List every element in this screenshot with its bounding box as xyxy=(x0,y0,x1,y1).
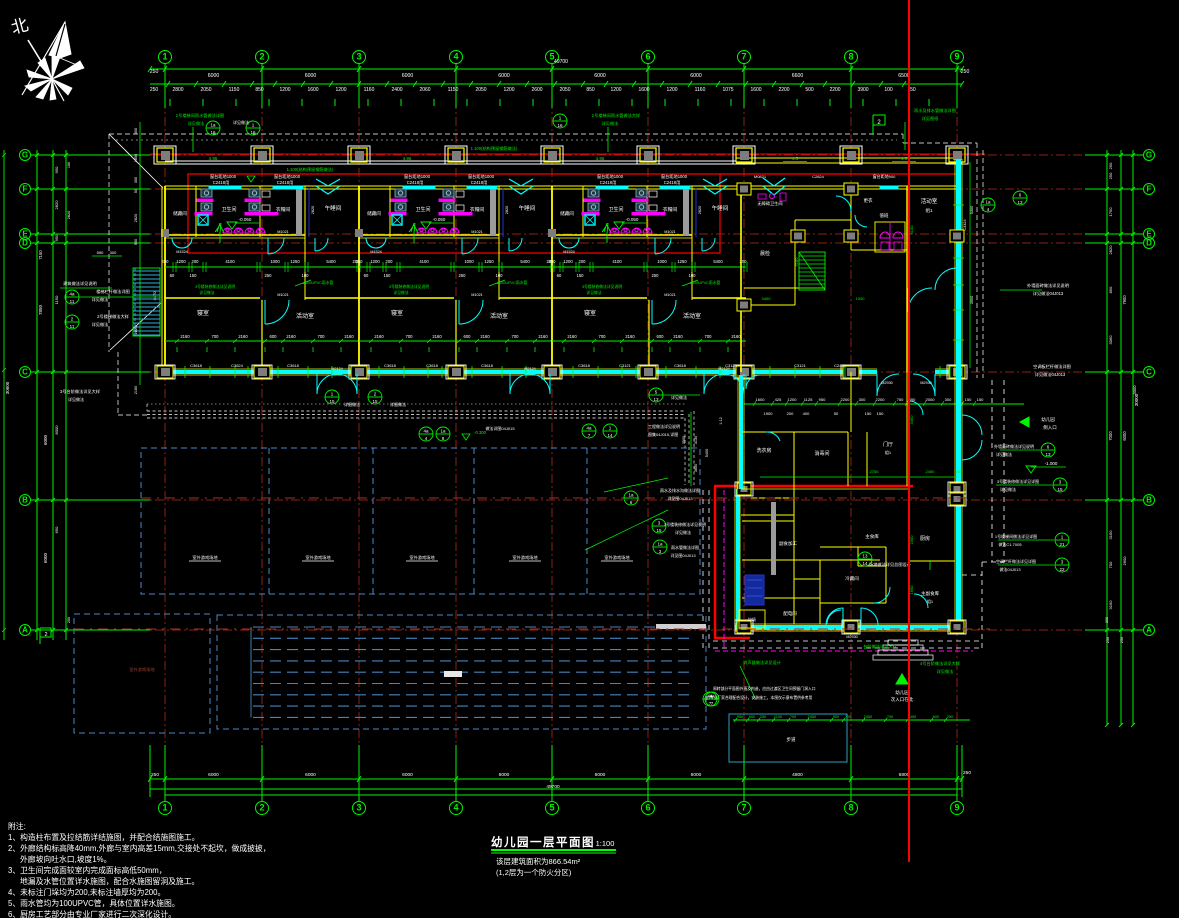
svg-text:C2824: C2824 xyxy=(812,174,825,179)
svg-text:7000: 7000 xyxy=(1108,431,1113,441)
svg-text:250: 250 xyxy=(652,273,660,278)
svg-text:3000: 3000 xyxy=(1132,385,1137,395)
svg-text:侧入口: 侧入口 xyxy=(1043,424,1057,431)
svg-text:详见做法: 详见做法 xyxy=(68,396,84,402)
svg-text:700: 700 xyxy=(212,334,220,339)
svg-text:窗台距地1000: 窗台距地1000 xyxy=(274,173,301,180)
svg-text:5300: 5300 xyxy=(970,206,974,214)
svg-text:2820: 2820 xyxy=(505,206,509,214)
svg-text:1a: 1a xyxy=(985,200,991,205)
svg-text:详细做法: 详细做法 xyxy=(390,401,406,407)
svg-text:6000: 6000 xyxy=(402,772,413,778)
svg-text:15: 15 xyxy=(1057,487,1063,492)
svg-text:无障碍卫生间: 无障碍卫生间 xyxy=(757,200,782,207)
svg-text:5400: 5400 xyxy=(713,259,723,264)
svg-text:值班: 值班 xyxy=(880,212,889,219)
svg-text:2820: 2820 xyxy=(54,200,59,210)
svg-text:周转部分平面图外墙及构造，应由过渡区卫生间预留门洞入口: 周转部分平面图外墙及构造，应由过渡区卫生间预留门洞入口 xyxy=(713,686,816,691)
svg-text:外廊坡向吐水口,坡度1%。: 外廊坡向吐水口,坡度1%。 xyxy=(20,854,111,864)
svg-text:8: 8 xyxy=(848,803,853,813)
svg-text:午睡间: 午睡间 xyxy=(712,204,729,212)
svg-text:4: 4 xyxy=(453,803,458,813)
svg-text:4100: 4100 xyxy=(612,259,622,264)
svg-text:700: 700 xyxy=(599,334,607,339)
svg-text:外墙面砖做法详见说明: 外墙面砖做法详见说明 xyxy=(994,443,1034,449)
svg-text:1200: 1200 xyxy=(563,259,573,264)
svg-text:250: 250 xyxy=(150,69,159,75)
svg-text:350: 350 xyxy=(162,259,170,264)
svg-text:1.100(结构预留钢筋做法): 1.100(结构预留钢筋做法) xyxy=(471,145,518,152)
svg-text:步道: 步道 xyxy=(787,736,796,743)
svg-text:4800: 4800 xyxy=(792,772,803,778)
svg-text:700: 700 xyxy=(318,334,326,339)
svg-text:1200: 1200 xyxy=(370,259,380,264)
svg-text:储藏间: 储藏间 xyxy=(367,210,381,217)
svg-text:该层建筑面积为866.54m²: 该层建筑面积为866.54m² xyxy=(496,856,581,866)
svg-text:由专业厂家合理配合设计，安装施工，本图仅示意布置供参考用: 由专业厂家合理配合设计，安装施工，本图仅示意布置供参考用 xyxy=(706,695,813,700)
svg-text:1250: 1250 xyxy=(677,259,687,264)
svg-text:3号楼装修做法详见说明: 3号楼装修做法详见说明 xyxy=(195,284,235,289)
svg-text:C3618: C3618 xyxy=(578,363,591,368)
svg-text:350: 350 xyxy=(356,259,364,264)
svg-text:6000: 6000 xyxy=(43,434,48,445)
svg-text:2160: 2160 xyxy=(134,386,138,394)
svg-text:300: 300 xyxy=(110,250,117,255)
svg-text:副食加工: 副食加工 xyxy=(779,540,797,547)
svg-text:60: 60 xyxy=(170,273,175,278)
svg-text:详见做法: 详见做法 xyxy=(602,120,619,127)
svg-text:详见做法: 详见做法 xyxy=(675,529,691,535)
svg-text:1250: 1250 xyxy=(484,259,494,264)
svg-text:1200: 1200 xyxy=(335,87,346,93)
svg-text:ø100UPVC雨水管: ø100UPVC雨水管 xyxy=(690,280,721,285)
svg-text:250: 250 xyxy=(151,772,159,778)
svg-text:30600: 30600 xyxy=(5,381,10,394)
svg-text:200: 200 xyxy=(579,259,587,264)
svg-text:M1021: M1021 xyxy=(471,230,483,234)
svg-text:700: 700 xyxy=(790,715,796,719)
svg-text:窗台距地1000: 窗台距地1000 xyxy=(661,173,688,180)
svg-text:300: 300 xyxy=(134,128,138,134)
svg-text:M1021: M1021 xyxy=(664,293,676,297)
svg-text:寝室: 寝室 xyxy=(391,309,403,317)
svg-text:M1021: M1021 xyxy=(277,293,289,297)
svg-text:250: 250 xyxy=(1106,637,1110,643)
svg-text:100: 100 xyxy=(884,87,893,93)
svg-text:150: 150 xyxy=(965,397,972,402)
svg-text:1200: 1200 xyxy=(176,259,186,264)
svg-text:15: 15 xyxy=(329,399,335,404)
svg-text:F: F xyxy=(23,185,28,194)
svg-text:50: 50 xyxy=(834,411,839,416)
svg-text:2800: 2800 xyxy=(172,87,183,93)
svg-text:250: 250 xyxy=(150,87,159,93)
svg-text:3900: 3900 xyxy=(970,296,974,304)
svg-text:250: 250 xyxy=(67,617,71,623)
svg-text:主食库: 主食库 xyxy=(865,533,879,540)
svg-text:250: 250 xyxy=(760,715,766,719)
svg-text:2160: 2160 xyxy=(673,334,683,339)
svg-text:4100: 4100 xyxy=(225,259,235,264)
svg-text:-0.050: -0.050 xyxy=(626,217,639,222)
svg-text:2750: 2750 xyxy=(870,469,880,474)
svg-text:6000: 6000 xyxy=(498,73,510,79)
svg-text:工程做法详见说明: 工程做法详见说明 xyxy=(648,423,680,429)
svg-text:2200: 2200 xyxy=(876,397,886,402)
svg-text:5400: 5400 xyxy=(520,259,530,264)
svg-text:1号楼梯间雨水管做法详图: 1号楼梯间雨水管做法详图 xyxy=(176,112,224,119)
svg-text:7: 7 xyxy=(741,52,746,62)
svg-text:午睡间: 午睡间 xyxy=(325,204,342,212)
svg-text:室外游戏场地: 室外游戏场地 xyxy=(129,666,155,673)
svg-text:详见图04J013: 详见图04J013 xyxy=(667,495,693,501)
svg-text:M1524: M1524 xyxy=(563,250,575,254)
svg-text:(1,2层为一个防火分区): (1,2层为一个防火分区) xyxy=(496,867,572,877)
svg-text:1200: 1200 xyxy=(503,87,514,93)
svg-text:150: 150 xyxy=(865,411,872,416)
svg-text:M2930: M2930 xyxy=(846,635,858,639)
svg-text:详见做法: 详见做法 xyxy=(233,119,249,125)
svg-text:3号台阶做法详见大样: 3号台阶做法详见大样 xyxy=(60,388,100,395)
svg-text:1160: 1160 xyxy=(364,87,375,93)
svg-text:6000: 6000 xyxy=(1122,431,1127,441)
svg-text:储藏间: 储藏间 xyxy=(560,210,574,217)
svg-text:3600: 3600 xyxy=(694,464,698,472)
svg-text:4a: 4a xyxy=(69,292,75,297)
svg-text:1075: 1075 xyxy=(722,87,733,93)
svg-text:衣帽间: 衣帽间 xyxy=(276,206,291,213)
svg-text:850: 850 xyxy=(1108,286,1113,293)
svg-text:室外游戏场地: 室外游戏场地 xyxy=(305,554,331,561)
svg-text:4470: 4470 xyxy=(152,291,157,301)
svg-text:C3618: C3618 xyxy=(190,363,203,368)
svg-text:窗台距地1000: 窗台距地1000 xyxy=(210,173,237,180)
svg-text:做法详图04J015: 做法详图04J015 xyxy=(485,425,515,431)
svg-text:1a: 1a xyxy=(628,493,634,498)
svg-text:2820: 2820 xyxy=(134,326,138,334)
svg-text:3、卫生间完成面较室内完成面标高低50mm，: 3、卫生间完成面较室内完成面标高低50mm， xyxy=(8,865,167,875)
svg-text:2050: 2050 xyxy=(559,87,570,93)
svg-text:窗台距地1000: 窗台距地1000 xyxy=(404,173,431,180)
svg-text:700: 700 xyxy=(1108,561,1113,568)
svg-text:1850: 1850 xyxy=(134,154,138,162)
svg-text:组1: 组1 xyxy=(927,598,934,604)
svg-text:4.5: 4.5 xyxy=(901,156,908,161)
svg-text:2号楼梯做法大样: 2号楼梯做法大样 xyxy=(97,313,129,320)
svg-text:150: 150 xyxy=(190,273,198,278)
svg-text:2600: 2600 xyxy=(1122,556,1127,566)
svg-text:4.5: 4.5 xyxy=(792,156,799,161)
svg-text:500: 500 xyxy=(833,715,839,719)
svg-text:3400: 3400 xyxy=(762,296,772,301)
svg-text:600: 600 xyxy=(464,334,472,339)
svg-text:活动室: 活动室 xyxy=(296,312,314,320)
svg-text:60: 60 xyxy=(364,273,369,278)
svg-text:组1: 组1 xyxy=(885,449,892,455)
svg-text:M1021: M1021 xyxy=(471,293,483,297)
svg-text:ø100UPVC雨水管: ø100UPVC雨水管 xyxy=(303,280,334,285)
svg-text:8: 8 xyxy=(848,52,853,62)
svg-text:950: 950 xyxy=(819,397,826,402)
svg-text:场地做法详见总图设计: 场地做法详见总图设计 xyxy=(869,561,911,568)
svg-text:雨水及排水沟做法详图: 雨水及排水沟做法详图 xyxy=(660,487,700,493)
svg-text:2200: 2200 xyxy=(841,397,851,402)
svg-text:做法C1.7005: 做法C1.7005 xyxy=(998,541,1022,547)
svg-text:6600: 6600 xyxy=(792,73,804,79)
svg-text:消毒间: 消毒间 xyxy=(814,450,829,457)
svg-text:650: 650 xyxy=(54,526,59,533)
svg-text:5400: 5400 xyxy=(705,449,709,457)
svg-text:C: C xyxy=(1146,368,1152,377)
svg-text:主副食库: 主副食库 xyxy=(921,590,939,597)
svg-text:午睡间: 午睡间 xyxy=(519,204,536,212)
svg-text:5400: 5400 xyxy=(326,259,336,264)
svg-text:250: 250 xyxy=(265,273,273,278)
svg-text:200: 200 xyxy=(386,259,394,264)
svg-text:100: 100 xyxy=(689,273,697,278)
svg-text:6、厨房工艺部分由专业厂家进行二次深化设计。: 6、厨房工艺部分由专业厂家进行二次深化设计。 xyxy=(8,909,176,918)
svg-text:卫生间: 卫生间 xyxy=(221,206,236,213)
svg-text:活动室: 活动室 xyxy=(490,312,508,320)
svg-text:6: 6 xyxy=(645,52,650,62)
svg-text:300: 300 xyxy=(1105,617,1109,623)
svg-text:2160: 2160 xyxy=(567,334,577,339)
svg-text:厨房: 厨房 xyxy=(920,535,930,542)
svg-text:6000: 6000 xyxy=(402,73,414,79)
svg-text:室外游戏场地: 室外游戏场地 xyxy=(192,554,218,561)
svg-text:4a: 4a xyxy=(423,429,429,434)
svg-text:3900: 3900 xyxy=(857,87,868,93)
svg-text:活动室: 活动室 xyxy=(683,312,701,320)
svg-text:C3618: C3618 xyxy=(481,363,494,368)
svg-text:雨水管做法详图: 雨水管做法详图 xyxy=(671,544,699,550)
svg-text:3060: 3060 xyxy=(1108,335,1113,345)
svg-text:M1524: M1524 xyxy=(370,250,382,254)
svg-text:窗台距地1000: 窗台距地1000 xyxy=(597,173,624,180)
svg-text:1200: 1200 xyxy=(666,87,677,93)
svg-text:6000: 6000 xyxy=(691,772,702,778)
svg-text:7: 7 xyxy=(741,803,746,813)
svg-text:详见做法: 详见做法 xyxy=(937,668,954,675)
svg-text:425: 425 xyxy=(775,397,782,402)
svg-text:B: B xyxy=(22,496,28,505)
svg-text:卫生间: 卫生间 xyxy=(608,206,623,213)
svg-text:1号楼梯间做法详见详图: 1号楼梯间做法详见详图 xyxy=(995,533,1037,539)
svg-text:门厅: 门厅 xyxy=(883,441,893,448)
svg-text:100: 100 xyxy=(302,273,310,278)
svg-text:3号楼装修做法详见详图: 3号楼装修做法详见详图 xyxy=(997,478,1039,484)
svg-text:2200: 2200 xyxy=(778,87,789,93)
svg-text:1200: 1200 xyxy=(610,87,621,93)
svg-text:幼儿园一层平面图: 幼儿园一层平面图 xyxy=(491,835,595,849)
svg-text:1600: 1600 xyxy=(756,397,766,402)
svg-text:150: 150 xyxy=(67,162,71,168)
svg-text:D: D xyxy=(1146,239,1152,248)
svg-text:2160: 2160 xyxy=(731,334,741,339)
svg-text:详见做法: 详见做法 xyxy=(1000,486,1016,492)
svg-text:2600: 2600 xyxy=(531,87,542,93)
svg-text:6000: 6000 xyxy=(305,73,317,79)
svg-text:C3121: C3121 xyxy=(619,363,632,368)
svg-text:2: 2 xyxy=(259,52,264,62)
svg-text:5: 5 xyxy=(549,803,554,813)
svg-text:M2930: M2930 xyxy=(920,381,932,385)
svg-text:2820: 2820 xyxy=(311,206,315,214)
svg-text:空调板栏杆做法详图: 空调板栏杆做法详图 xyxy=(1033,363,1071,370)
svg-text:1250: 1250 xyxy=(290,259,300,264)
svg-text:C: C xyxy=(22,368,28,377)
svg-text:1150: 1150 xyxy=(448,87,459,93)
svg-text:详见做法: 详见做法 xyxy=(393,290,408,295)
svg-text:-1.000: -1.000 xyxy=(1045,461,1058,466)
svg-text:附注:: 附注: xyxy=(8,821,26,831)
svg-text:11: 11 xyxy=(70,324,75,329)
svg-text:49700: 49700 xyxy=(554,59,568,65)
svg-text:950: 950 xyxy=(134,239,138,245)
svg-text:1000: 1000 xyxy=(270,259,280,264)
svg-text:22: 22 xyxy=(1059,567,1065,572)
svg-text:详见图04J013: 详见图04J013 xyxy=(670,552,696,558)
svg-text:1600: 1600 xyxy=(307,87,318,93)
svg-text:300: 300 xyxy=(945,397,952,402)
svg-text:建筑做法详见说明: 建筑做法详见说明 xyxy=(63,280,97,287)
svg-text:M1021: M1021 xyxy=(664,230,676,234)
svg-text:49700: 49700 xyxy=(546,784,560,790)
svg-text:空调栏杆做法详见详图: 空调栏杆做法详见详图 xyxy=(996,558,1036,564)
svg-text:950: 950 xyxy=(737,715,743,719)
svg-text:2050: 2050 xyxy=(200,87,211,93)
svg-text:500: 500 xyxy=(805,87,814,93)
svg-text:外墙面砖做法详见说明: 外墙面砖做法详见说明 xyxy=(1027,282,1069,289)
svg-text:6000: 6000 xyxy=(208,73,220,79)
svg-text:250: 250 xyxy=(459,273,467,278)
svg-text:600: 600 xyxy=(749,715,755,719)
svg-text:13: 13 xyxy=(862,554,868,559)
svg-text:2160: 2160 xyxy=(480,334,490,339)
svg-text:A: A xyxy=(22,626,28,635)
svg-text:700: 700 xyxy=(705,334,713,339)
svg-text:2160: 2160 xyxy=(286,334,296,339)
svg-text:750: 750 xyxy=(897,397,904,402)
svg-text:1900: 1900 xyxy=(764,411,774,416)
svg-text:衣帽间: 衣帽间 xyxy=(470,206,485,213)
svg-text:3: 3 xyxy=(356,803,361,813)
svg-text:窗台距地900: 窗台距地900 xyxy=(873,173,896,179)
svg-text:1000: 1000 xyxy=(657,259,667,264)
svg-text:3180: 3180 xyxy=(794,257,799,267)
svg-text:2820: 2820 xyxy=(67,211,71,219)
svg-text:4a: 4a xyxy=(586,426,592,431)
svg-text:850: 850 xyxy=(586,87,595,93)
svg-text:2060: 2060 xyxy=(419,87,430,93)
svg-text:15: 15 xyxy=(372,399,378,404)
svg-text:13: 13 xyxy=(653,397,659,402)
svg-text:室外游戏场地: 室外游戏场地 xyxy=(409,554,435,561)
svg-text:M1021: M1021 xyxy=(277,230,289,234)
svg-text:冷藏间: 冷藏间 xyxy=(845,575,859,582)
svg-text:11: 11 xyxy=(70,299,75,304)
svg-text:1600: 1600 xyxy=(638,87,649,93)
svg-text:3500: 3500 xyxy=(682,436,686,444)
svg-text:2160: 2160 xyxy=(180,334,190,339)
svg-text:窗台距地1000: 窗台距地1000 xyxy=(468,173,495,180)
svg-text:1:12: 1:12 xyxy=(719,417,723,424)
svg-text:洗衣房: 洗衣房 xyxy=(756,447,771,454)
svg-text:组1: 组1 xyxy=(925,207,932,213)
svg-text:350: 350 xyxy=(549,259,557,264)
svg-text:地漏及水管位置详水施图，配合水施图留洞及施工。: 地漏及水管位置详水施图，配合水施图留洞及施工。 xyxy=(20,876,199,886)
svg-text:寝室: 寝室 xyxy=(584,309,596,317)
svg-text:详见做法: 详见做法 xyxy=(92,321,109,328)
svg-text:2160: 2160 xyxy=(374,334,384,339)
svg-text:垃圾: 垃圾 xyxy=(748,616,756,622)
svg-text:B: B xyxy=(1146,496,1152,505)
svg-text:F: F xyxy=(1147,185,1152,194)
svg-text:9: 9 xyxy=(954,803,959,813)
svg-text:1.100(结构预留钢筋做法): 1.100(结构预留钢筋做法) xyxy=(287,166,334,173)
svg-text:A: A xyxy=(1146,626,1152,635)
svg-text:6000: 6000 xyxy=(499,772,510,778)
svg-text:2400: 2400 xyxy=(391,87,402,93)
svg-text:1000: 1000 xyxy=(856,296,866,301)
svg-text:1: 1 xyxy=(162,52,167,62)
svg-text:2450: 2450 xyxy=(926,469,936,474)
svg-text:3150: 3150 xyxy=(1108,530,1113,540)
svg-text:7900: 7900 xyxy=(1122,295,1127,305)
svg-text:2160: 2160 xyxy=(432,334,442,339)
svg-text:700: 700 xyxy=(845,715,851,719)
svg-text:1125: 1125 xyxy=(804,397,813,402)
svg-text:活动室: 活动室 xyxy=(921,197,938,205)
svg-text:4.95: 4.95 xyxy=(403,156,412,161)
svg-text:2050: 2050 xyxy=(475,87,486,93)
svg-text:雨水及排水管做法详图: 雨水及排水管做法详图 xyxy=(914,107,956,114)
svg-text:晨检: 晨检 xyxy=(760,250,770,257)
svg-text:700: 700 xyxy=(406,334,414,339)
svg-text:幼儿园: 幼儿园 xyxy=(1041,416,1055,423)
svg-text:300: 300 xyxy=(134,177,138,183)
svg-text:M2124: M2124 xyxy=(718,367,730,371)
svg-text:250: 250 xyxy=(961,69,970,75)
svg-text:M2124: M2124 xyxy=(524,367,536,371)
svg-text:950: 950 xyxy=(54,234,59,241)
svg-text:250: 250 xyxy=(963,770,971,776)
svg-text:1200: 1200 xyxy=(788,397,798,402)
svg-text:卫生间: 卫生间 xyxy=(415,206,430,213)
svg-text:3号楼装修做法详见说明: 3号楼装修做法详见说明 xyxy=(389,284,429,289)
svg-text:14: 14 xyxy=(862,561,868,566)
svg-text:16: 16 xyxy=(210,130,216,135)
svg-text:6000: 6000 xyxy=(595,772,606,778)
svg-text:5、雨水管均为100UPVC管，具体位置详水施图。: 5、雨水管均为100UPVC管，具体位置详水施图。 xyxy=(8,898,180,908)
svg-text:详见做法04J013: 详见做法04J013 xyxy=(1035,371,1066,378)
svg-text:储藏间: 储藏间 xyxy=(173,210,187,217)
svg-text:1200: 1200 xyxy=(279,87,290,93)
svg-text:1750: 1750 xyxy=(1108,207,1113,217)
svg-text:250: 250 xyxy=(1120,637,1124,643)
svg-text:1a: 1a xyxy=(210,123,216,128)
svg-text:6000: 6000 xyxy=(208,772,219,778)
svg-text:1:100: 1:100 xyxy=(596,839,615,848)
svg-text:-0.050: -0.050 xyxy=(239,217,252,222)
svg-text:ø100UPVC雨水管: ø100UPVC雨水管 xyxy=(497,280,528,285)
svg-text:4: 4 xyxy=(453,52,458,62)
svg-text:详见做法: 详见做法 xyxy=(586,290,601,295)
svg-text:4.95: 4.95 xyxy=(209,156,218,161)
svg-text:600: 600 xyxy=(270,334,278,339)
svg-text:M0821: M0821 xyxy=(754,174,767,179)
svg-text:1a: 1a xyxy=(440,429,446,434)
